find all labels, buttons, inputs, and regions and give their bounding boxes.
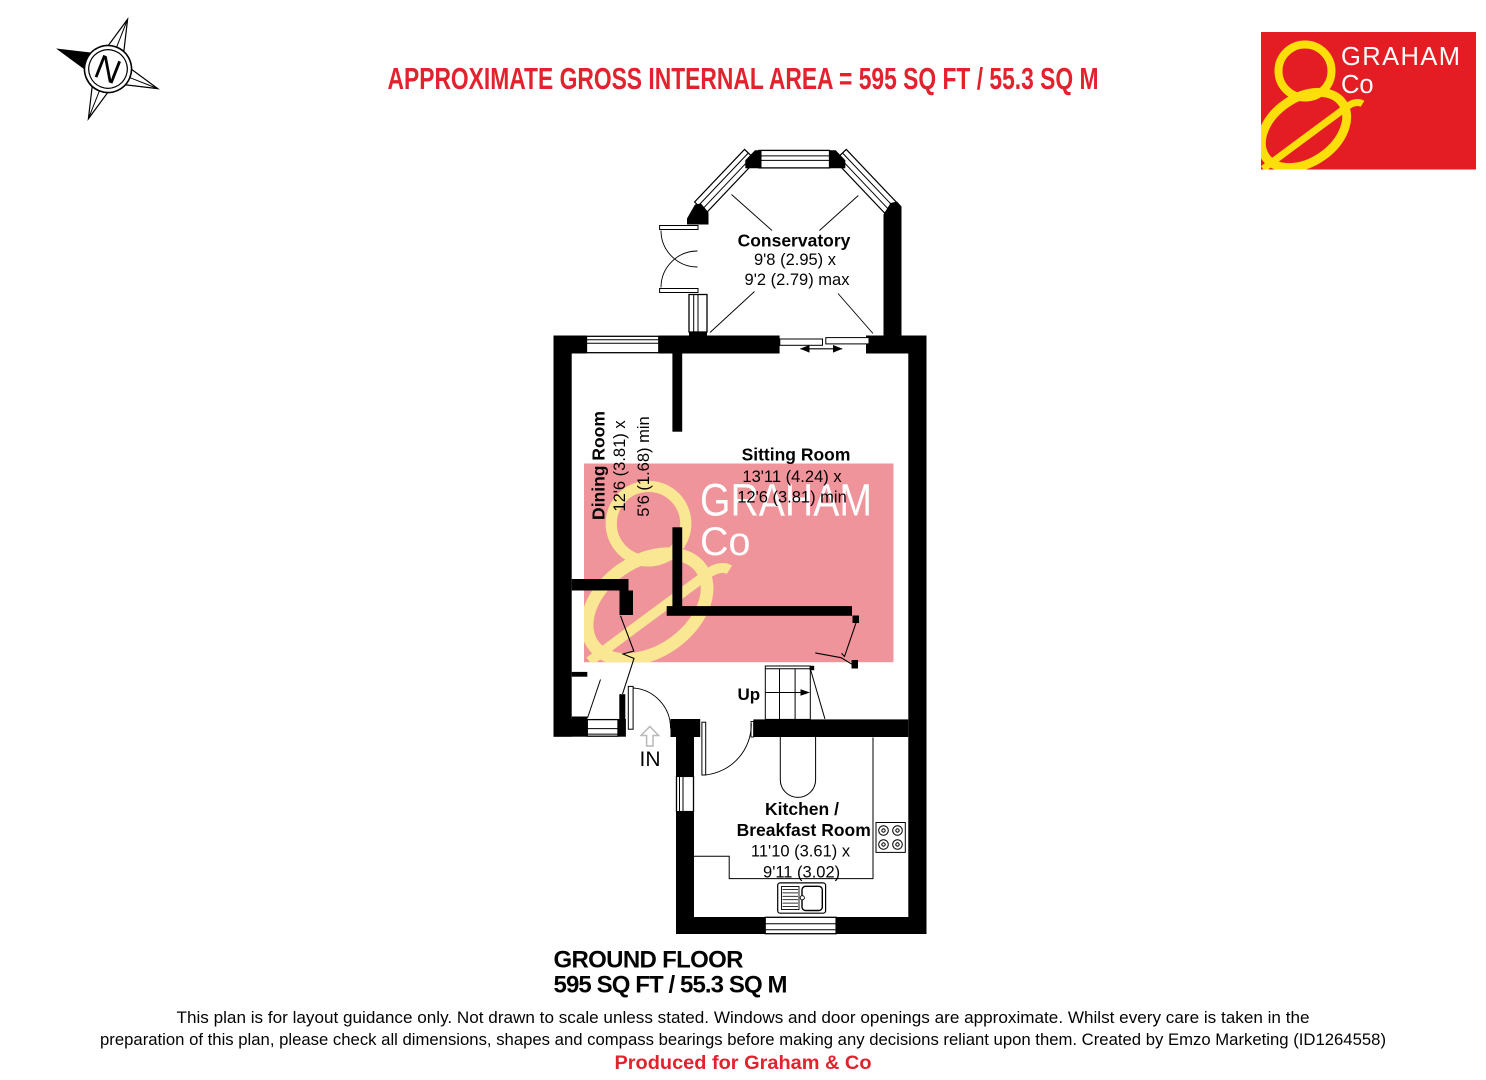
svg-text:Sitting Room: Sitting Room xyxy=(742,445,851,465)
svg-text:Co: Co xyxy=(1341,71,1374,99)
svg-text:preparation of this plan, plea: preparation of this plan, please check a… xyxy=(100,1030,1386,1049)
svg-text:GROUND FLOOR: GROUND FLOOR xyxy=(554,947,744,974)
svg-text:595 SQ FT / 55.3 SQ M: 595 SQ FT / 55.3 SQ M xyxy=(554,972,788,999)
svg-text:9'8 (2.95) x: 9'8 (2.95) x xyxy=(754,251,837,269)
svg-text:IN: IN xyxy=(640,748,661,771)
svg-text:APPROXIMATE GROSS INTERNAL ARE: APPROXIMATE GROSS INTERNAL AREA = 595 SQ… xyxy=(388,61,1099,96)
svg-text:Dining Room: Dining Room xyxy=(589,411,609,520)
svg-text:Up: Up xyxy=(738,685,761,704)
svg-text:This plan is for layout guidan: This plan is for layout guidance only. N… xyxy=(177,1008,1310,1027)
svg-text:Conservatory: Conservatory xyxy=(738,230,851,250)
svg-text:9'2 (2.79) max: 9'2 (2.79) max xyxy=(745,271,851,289)
svg-text:12'6 (3.81) min: 12'6 (3.81) min xyxy=(737,489,847,507)
svg-text:Breakfast Room: Breakfast Room xyxy=(737,820,871,840)
svg-text:12'6 (3.81) x: 12'6 (3.81) x xyxy=(611,420,629,512)
svg-text:Co: Co xyxy=(700,520,751,564)
svg-text:5'6 (1.68) min: 5'6 (1.68) min xyxy=(635,416,653,516)
svg-text:Produced for Graham & Co: Produced for Graham & Co xyxy=(615,1052,872,1074)
svg-text:GRAHAM: GRAHAM xyxy=(1341,43,1460,71)
svg-text:11'10 (3.61) x: 11'10 (3.61) x xyxy=(751,842,851,860)
svg-text:9'11 (3.02): 9'11 (3.02) xyxy=(763,863,840,881)
svg-text:Kitchen /: Kitchen / xyxy=(765,799,839,819)
svg-text:13'11 (4.24) x: 13'11 (4.24) x xyxy=(742,468,842,486)
